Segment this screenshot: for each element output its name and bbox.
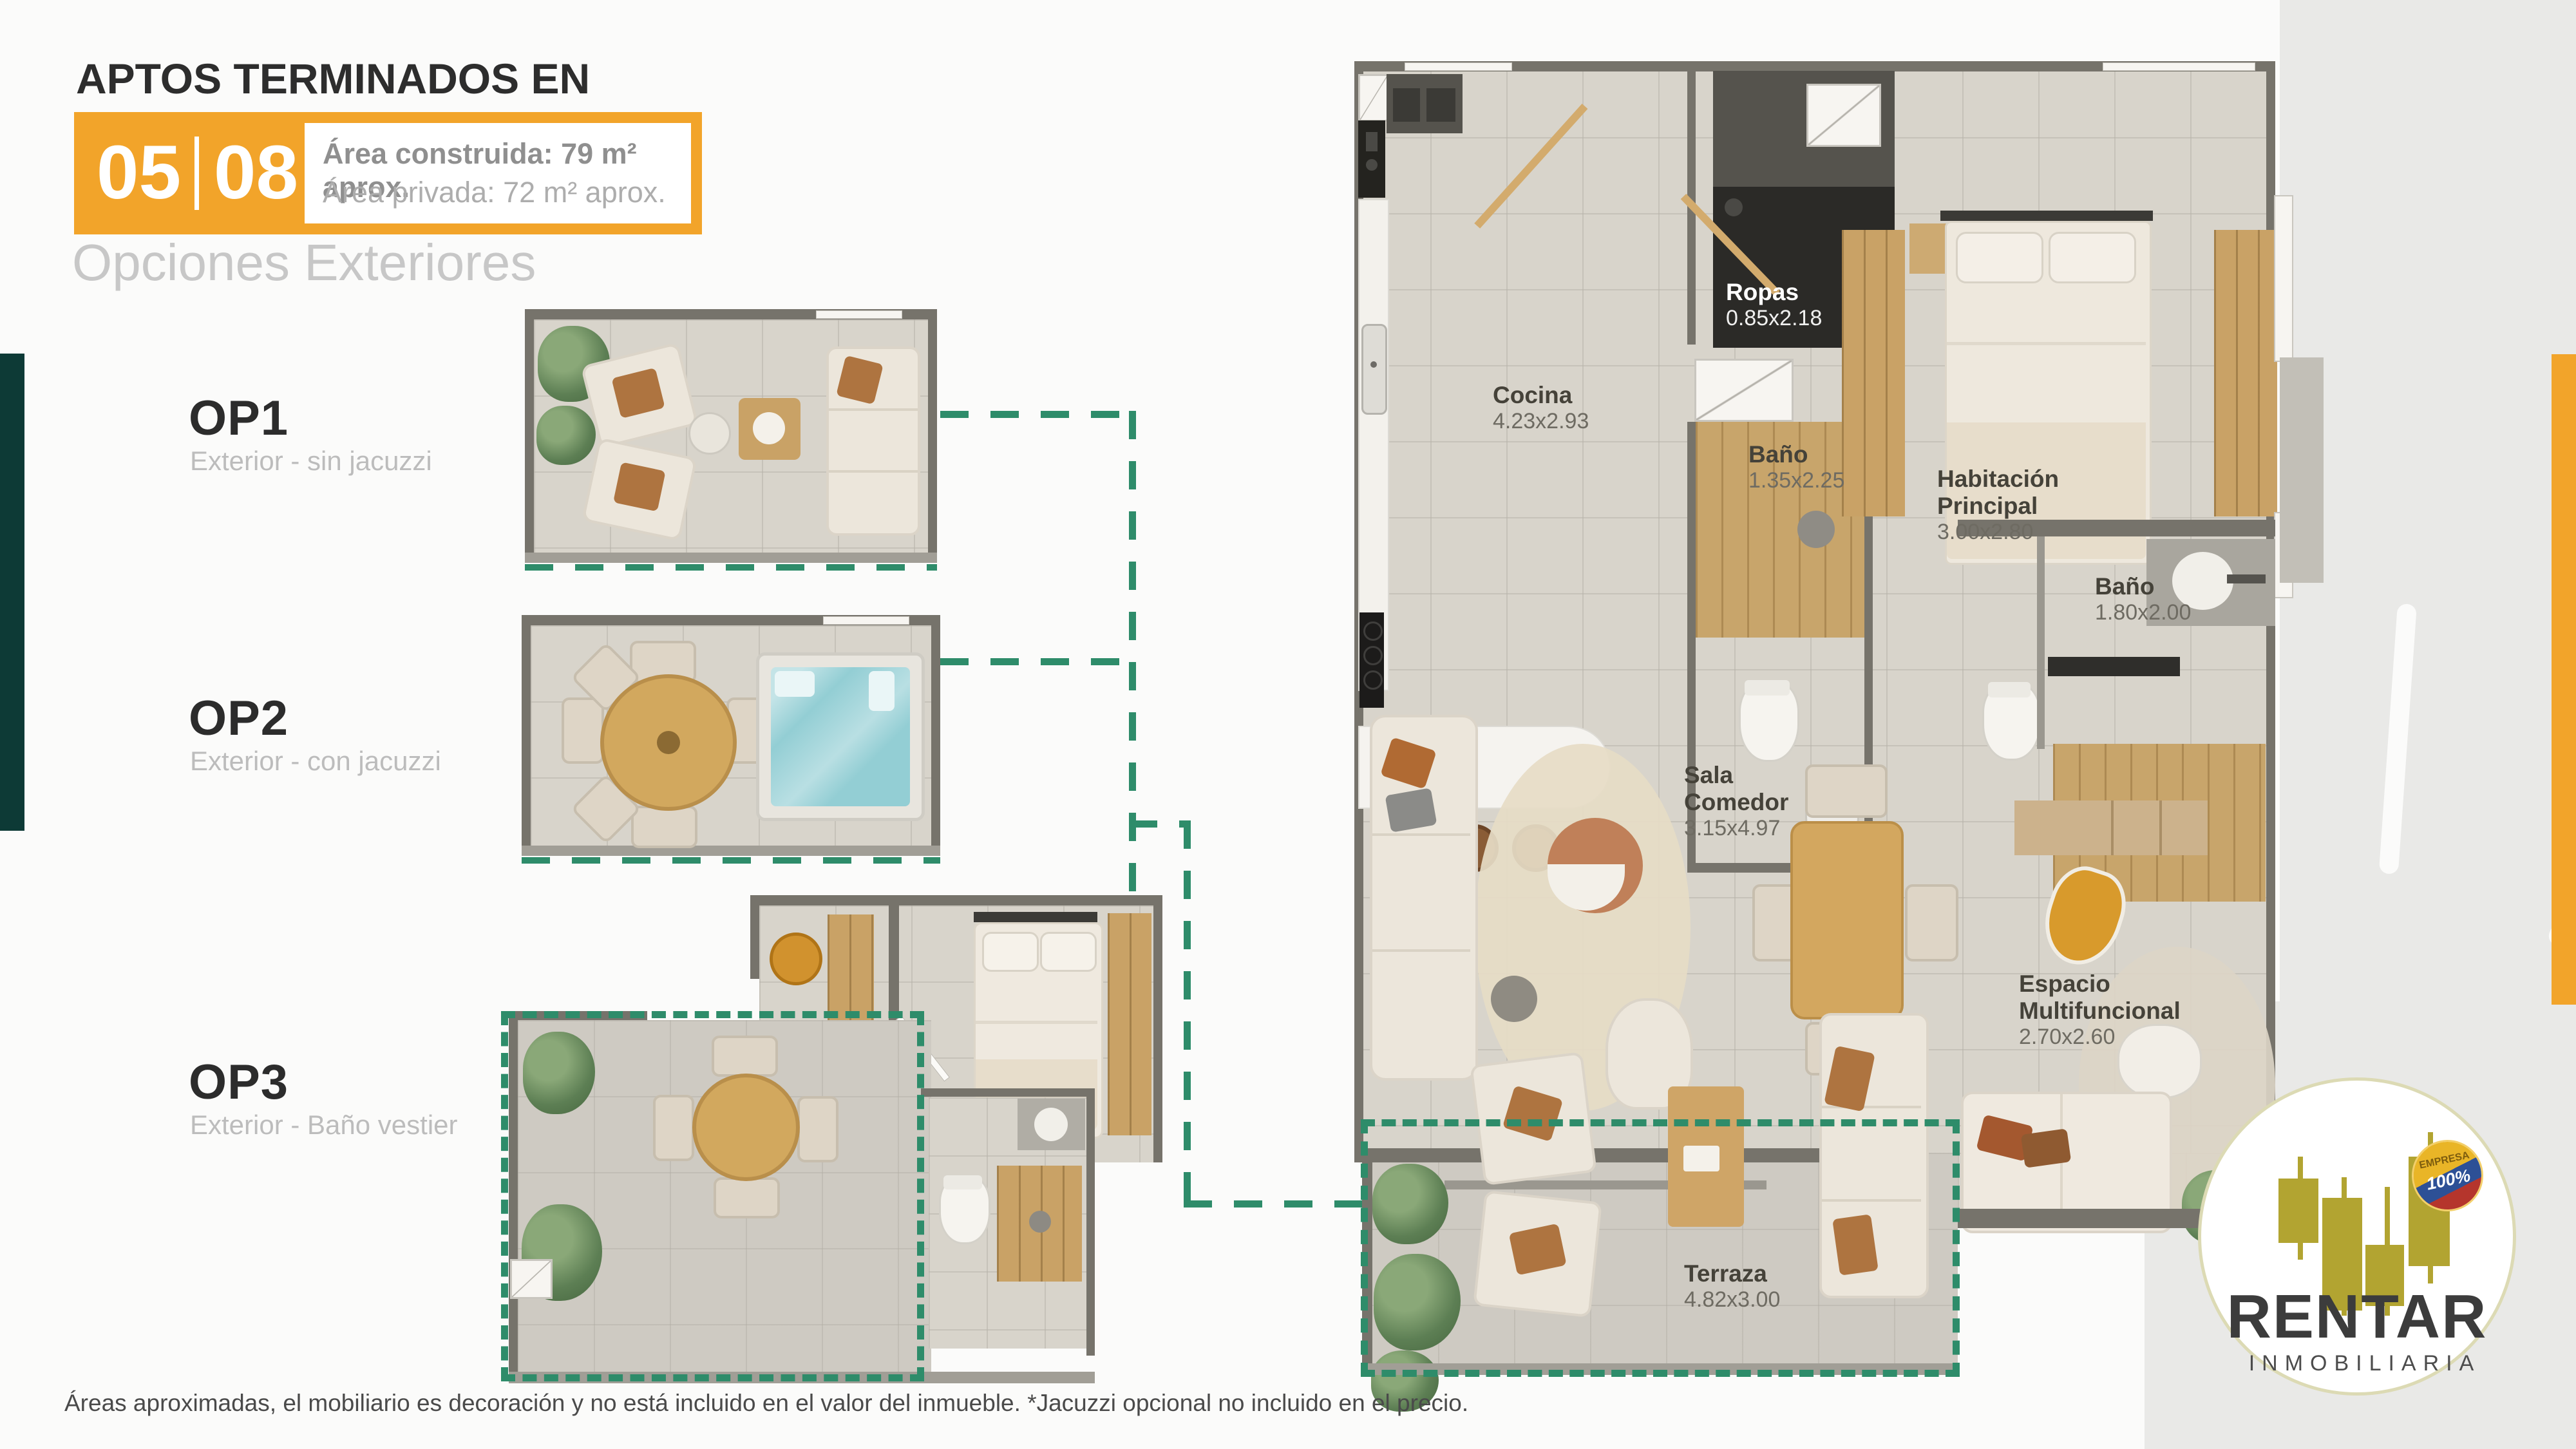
- op2-dining-chair: [562, 697, 604, 764]
- op3-bath-wall-top: [921, 1088, 1095, 1097]
- op2-plan-thumbnail: [522, 615, 940, 866]
- option-op3-label: Exterior - Baño vestier: [190, 1110, 458, 1141]
- bedroom-wardrobe-left: [1842, 230, 1905, 516]
- op3-toilet: [939, 1176, 990, 1244]
- room-label-espacio: Espacio Multifuncional 2.70x2.60: [2019, 971, 2181, 1049]
- bano1-toilet: [1739, 681, 1799, 762]
- teal-accent-bar: [0, 354, 24, 831]
- op1-plan-thumbnail: [525, 309, 937, 573]
- connector-op2: [940, 658, 1129, 665]
- kitchen-pantry: [1358, 74, 1389, 122]
- op2-window: [823, 616, 909, 625]
- op3-bed-headboard: [974, 912, 1097, 922]
- op3-desk-stool: [770, 933, 822, 985]
- kitchen-cooktop: [1359, 612, 1384, 708]
- unit-number-05: 05: [86, 129, 192, 216]
- unit-number-08: 08: [203, 129, 309, 216]
- page-title: APTOS TERMINADOS EN: [76, 54, 590, 103]
- sala-coffee-table: [1548, 818, 1643, 913]
- rentar-logo: EMPRESA 100% RENTAR INMOBILIARIA: [2198, 1077, 2516, 1396]
- option-op2-code: OP2: [189, 690, 289, 746]
- sala-sofa: [1370, 715, 1478, 1081]
- terrace-highlight-box: [1361, 1119, 1960, 1377]
- option-op1-label: Exterior - sin jacuzzi: [190, 446, 432, 477]
- flyer-canvas: APTOS TERMINADOS EN 05 08 Área construid…: [0, 0, 2576, 1449]
- op2-wall-left: [522, 615, 531, 846]
- op3-vanity: [1018, 1099, 1085, 1150]
- op1-rail-dashes: [525, 564, 937, 571]
- op1-window: [816, 310, 902, 319]
- connector-op1: [940, 411, 1133, 418]
- op3-closet: [1108, 913, 1151, 1135]
- op2-round-table: [600, 674, 737, 811]
- unit-banner: 05 08 Área construida: 79 m² aprox. Área…: [74, 112, 702, 234]
- connector-vertical-2: [1184, 820, 1191, 1207]
- bano2-toilet: [1982, 683, 2041, 761]
- plan-right-ledge: [2280, 357, 2324, 583]
- op3-bath-wall-right: [1086, 1088, 1095, 1356]
- op3-highlight-box: [501, 1011, 924, 1381]
- bedroom-bed-frame: [1940, 211, 2153, 221]
- op3-shower: [997, 1166, 1082, 1282]
- op1-side-table: [688, 412, 731, 455]
- logo-candlestick-bar: [2278, 1179, 2318, 1243]
- connector-jog-2: [1184, 1200, 1364, 1207]
- op1-wall-right: [928, 309, 937, 553]
- section-subtitle: Opciones Exteriores: [72, 233, 536, 292]
- laundry-cabinet: [1713, 71, 1895, 187]
- op2-dining-chair: [631, 806, 697, 848]
- op2-balcony-rail: [522, 846, 940, 856]
- op1-wall-left: [525, 309, 534, 553]
- room-label-ropas: Ropas 0.85x2.18: [1726, 279, 1822, 330]
- logo-brand-text: RENTAR: [2201, 1282, 2513, 1352]
- room-label-cocina: Cocina 4.23x2.93: [1493, 382, 1589, 433]
- option-op2-label: Exterior - con jacuzzi: [190, 746, 441, 777]
- op2-jacuzzi: [756, 652, 925, 821]
- option-op3-code: OP3: [189, 1054, 289, 1110]
- op1-sofa: [826, 346, 920, 536]
- sala-pouf: [1491, 976, 1537, 1022]
- area-private-label: Área privada: 72 m² aprox.: [323, 176, 666, 209]
- bano2-divider: [2037, 536, 2045, 749]
- disclaimer-text: Áreas aproximadas, el mobiliario es deco…: [64, 1390, 1468, 1417]
- unit-divider: [194, 137, 199, 210]
- bedroom-window-right: [2274, 195, 2293, 362]
- kitchen-tall-unit: [1358, 120, 1385, 198]
- corridor-cabinet: [1694, 359, 1794, 422]
- option-op1-code: OP1: [189, 390, 289, 446]
- logo-tagline-text: INMOBILIARIA: [2209, 1351, 2521, 1376]
- espacio-desk: [2014, 800, 2208, 855]
- op3-bedroom-wall-top: [750, 895, 1162, 905]
- dining-chair: [1905, 884, 1958, 961]
- plan-window-top-2: [2103, 62, 2255, 71]
- area-panel: Área construida: 79 m² aprox. Área priva…: [305, 123, 691, 223]
- kitchen-sink: [1361, 324, 1387, 415]
- connector-jog-1: [1129, 820, 1190, 828]
- plan-window-top-1: [1405, 62, 1512, 71]
- op1-coffee-table: [739, 398, 800, 460]
- room-label-sala: Sala Comedor 3.15x4.97: [1684, 762, 1788, 840]
- op2-rail-dashes: [522, 857, 940, 864]
- op3-bedroom-wall-left: [750, 895, 759, 979]
- dining-chair: [1805, 764, 1888, 818]
- orange-accent-bar: [2552, 354, 2576, 1005]
- op2-wall-right: [931, 615, 940, 846]
- op3-bedroom-wall-right: [1153, 895, 1162, 1162]
- op1-balcony-rail: [525, 553, 937, 563]
- room-label-bano2: Baño 1.80x2.00: [2095, 573, 2191, 625]
- bedroom-foot-bench: [2048, 657, 2180, 676]
- bedroom-wardrobe-right: [2214, 230, 2277, 516]
- room-label-habitacion: Habitación Principal 3.00x2.80: [1937, 466, 2059, 544]
- room-label-bano1: Baño 1.35x2.25: [1748, 441, 1844, 493]
- dining-table: [1790, 821, 1904, 1019]
- kitchen-fridge-nook: [1387, 74, 1463, 133]
- bano1-drain: [1797, 511, 1835, 548]
